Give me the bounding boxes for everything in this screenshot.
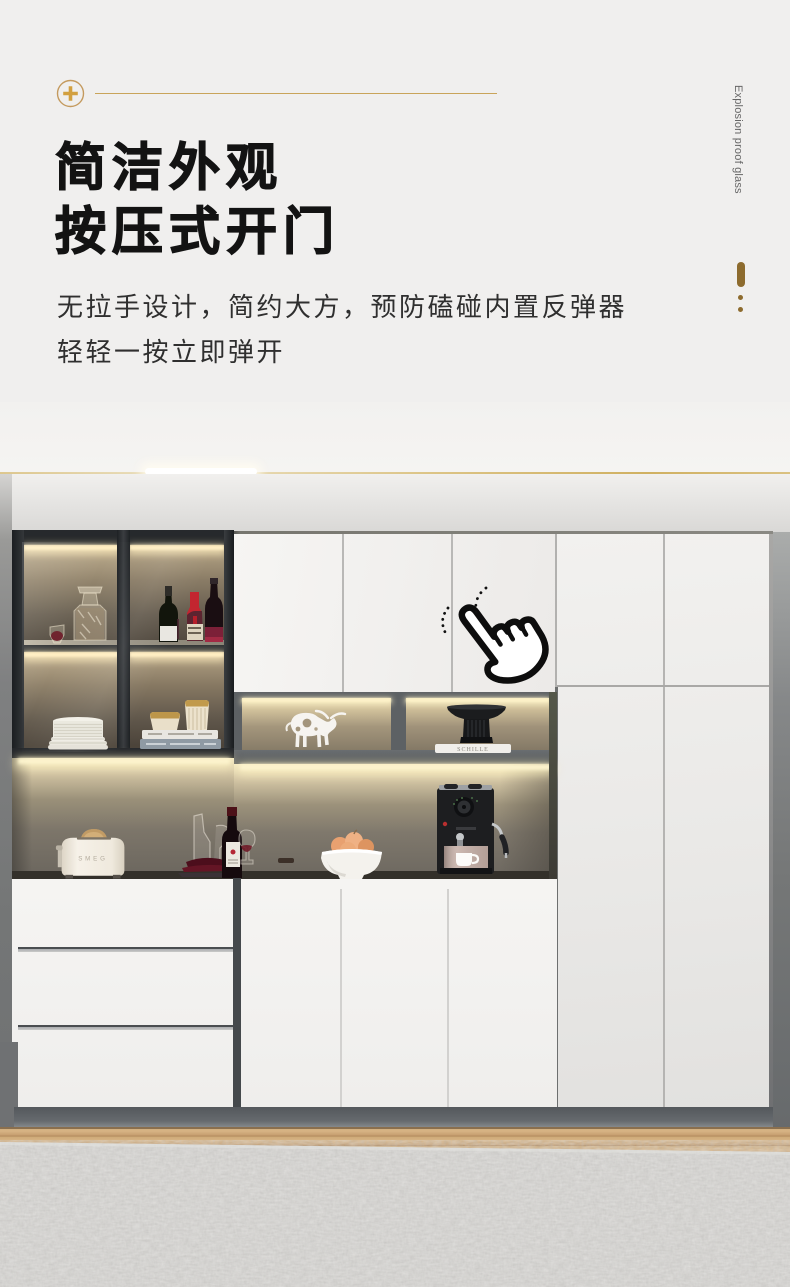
svg-text:SCHILLE: SCHILLE <box>457 747 489 753</box>
svg-text:SMEG: SMEG <box>78 856 108 863</box>
